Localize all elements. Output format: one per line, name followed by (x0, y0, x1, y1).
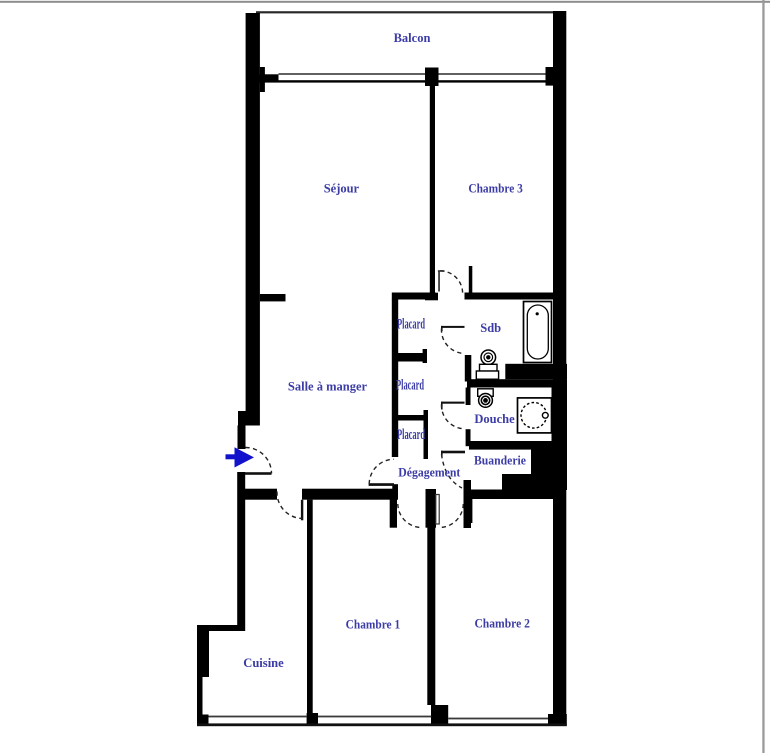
svg-text:Placard: Placard (396, 378, 424, 394)
svg-text:Balcon: Balcon (394, 31, 431, 45)
svg-text:Sdb: Sdb (480, 321, 501, 335)
svg-text:Placard: Placard (397, 316, 425, 332)
svg-text:Douche: Douche (474, 412, 515, 426)
svg-text:Chambre 1: Chambre 1 (346, 618, 401, 632)
svg-text:Chambre 3: Chambre 3 (468, 182, 523, 196)
svg-text:Dégagement: Dégagement (398, 466, 461, 480)
svg-text:Placard: Placard (397, 427, 425, 443)
svg-text:Cuisine: Cuisine (243, 656, 284, 670)
svg-text:Séjour: Séjour (324, 182, 360, 196)
svg-text:Salle à manger: Salle à manger (288, 379, 368, 393)
svg-text:Buanderie: Buanderie (474, 453, 526, 467)
svg-text:Chambre 2: Chambre 2 (474, 617, 530, 631)
